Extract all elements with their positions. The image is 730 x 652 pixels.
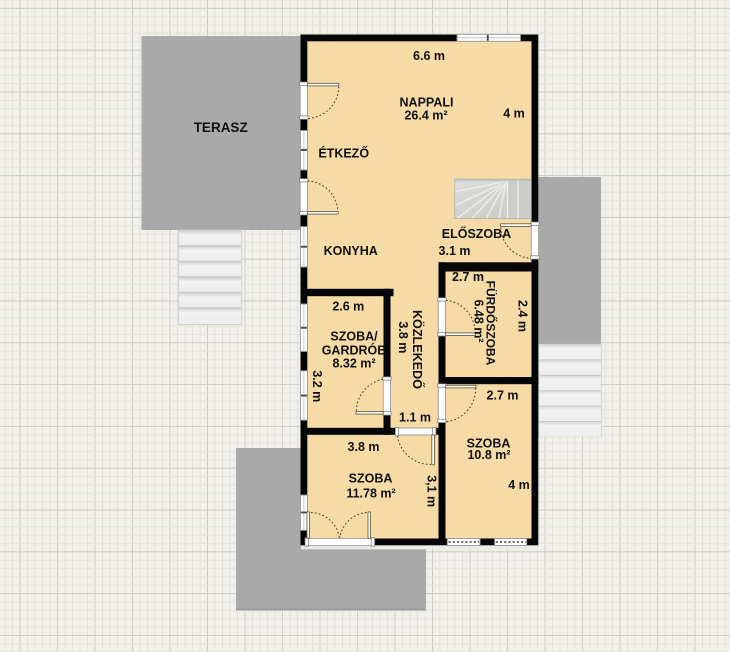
svg-text:6.48 m²: 6.48 m² <box>472 299 486 342</box>
svg-text:11.78 m²: 11.78 m² <box>346 487 395 501</box>
svg-text:NAPPALI: NAPPALI <box>400 95 454 109</box>
svg-text:4 m: 4 m <box>503 107 525 121</box>
svg-text:ELŐSZOBA: ELŐSZOBA <box>442 226 511 241</box>
svg-text:6.6 m: 6.6 m <box>413 49 445 63</box>
svg-text:ÉTKEZŐ: ÉTKEZŐ <box>318 145 369 160</box>
svg-text:4 m: 4 m <box>508 478 530 492</box>
svg-text:3.8 m: 3.8 m <box>348 440 380 454</box>
svg-text:KÖZLEKEDŐ: KÖZLEKEDŐ <box>410 310 425 389</box>
svg-text:3,1 m: 3,1 m <box>424 475 438 507</box>
svg-text:1.1 m: 1.1 m <box>399 410 431 424</box>
svg-text:2.7 m: 2.7 m <box>487 389 519 403</box>
svg-text:2.7 m: 2.7 m <box>452 270 484 284</box>
svg-text:3.8 m: 3.8 m <box>396 321 410 353</box>
svg-text:GARDRÓB: GARDRÓB <box>322 343 387 358</box>
svg-text:3.1 m: 3.1 m <box>439 244 471 258</box>
svg-text:3.2 m: 3.2 m <box>310 370 324 402</box>
svg-text:8.32 m²: 8.32 m² <box>332 357 375 371</box>
svg-text:SZOBA: SZOBA <box>349 472 393 486</box>
svg-text:KONYHA: KONYHA <box>324 244 378 258</box>
svg-text:26.4 m²: 26.4 m² <box>404 109 447 123</box>
svg-text:SZOBA/: SZOBA/ <box>330 330 378 344</box>
svg-text:TERASZ: TERASZ <box>194 120 248 135</box>
svg-text:10.8 m²: 10.8 m² <box>467 448 510 462</box>
svg-text:2.4 m: 2.4 m <box>516 300 530 332</box>
svg-text:2.6 m: 2.6 m <box>332 299 364 313</box>
